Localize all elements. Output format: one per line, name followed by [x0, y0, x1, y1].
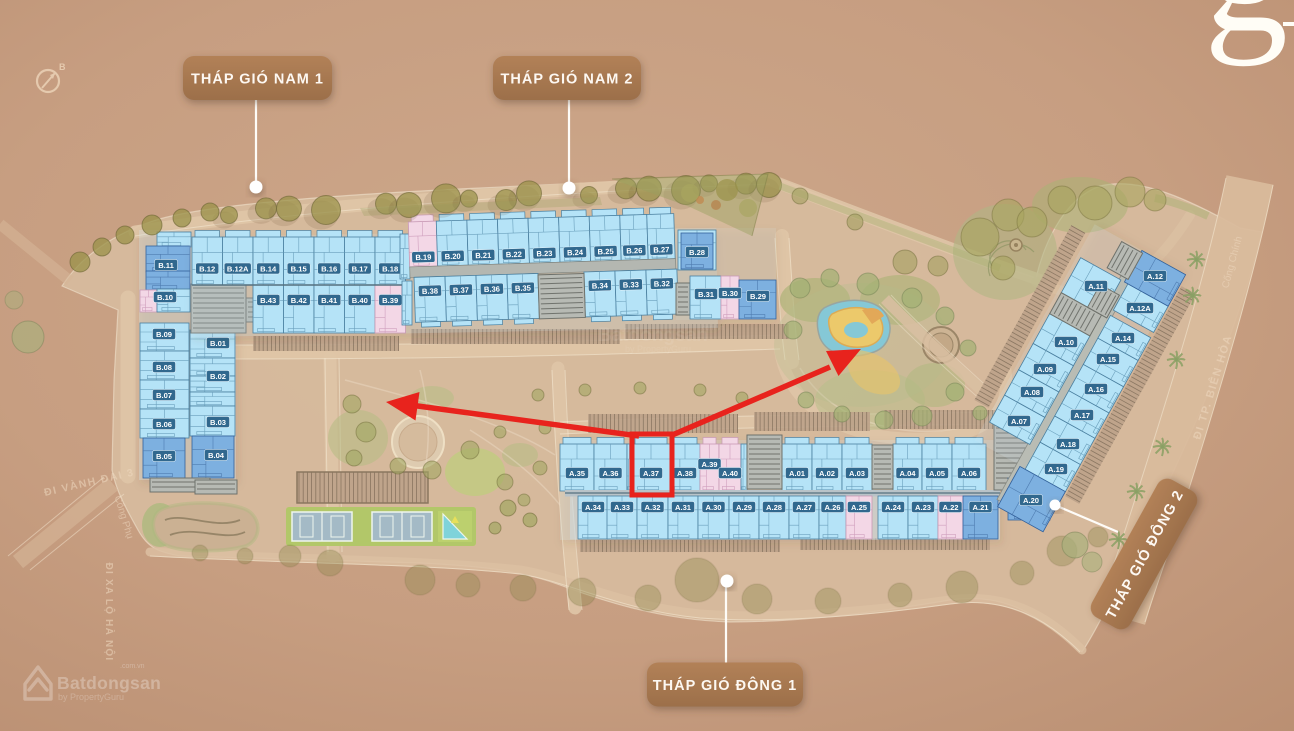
svg-text:A.27: A.27	[796, 503, 812, 512]
svg-text:A.37: A.37	[643, 469, 659, 478]
svg-text:B.23: B.23	[536, 249, 552, 258]
svg-text:B.15: B.15	[291, 264, 308, 273]
svg-text:A.06: A.06	[961, 469, 977, 478]
svg-text:B.33: B.33	[623, 280, 639, 289]
svg-text:B.35: B.35	[515, 284, 532, 294]
svg-text:A.35: A.35	[569, 469, 586, 478]
svg-text:A.24: A.24	[885, 503, 902, 512]
svg-text:A.31: A.31	[675, 503, 692, 512]
svg-text:B.28: B.28	[689, 248, 705, 257]
svg-text:A.05: A.05	[929, 469, 946, 478]
svg-text:B.21: B.21	[475, 251, 492, 261]
svg-text:B.08: B.08	[156, 363, 172, 372]
svg-text:A.28: A.28	[766, 503, 782, 512]
svg-text:A.11: A.11	[1088, 282, 1104, 291]
svg-text:B.31: B.31	[698, 290, 715, 299]
svg-text:B.41: B.41	[321, 296, 338, 305]
svg-text:B.20: B.20	[445, 252, 461, 261]
svg-text:B.01: B.01	[210, 339, 227, 348]
svg-text:A.29: A.29	[736, 503, 752, 512]
svg-text:B.22: B.22	[506, 250, 522, 259]
svg-text:B.36: B.36	[484, 285, 500, 294]
svg-text:Batdongsan: Batdongsan	[598, 325, 708, 346]
svg-text:B.02: B.02	[210, 372, 226, 381]
svg-text:B.04: B.04	[208, 451, 225, 460]
svg-text:by PropertyGuru: by PropertyGuru	[58, 692, 124, 702]
svg-text:A.30: A.30	[705, 503, 721, 512]
svg-text:B.05: B.05	[156, 452, 173, 461]
svg-text:ĐI XA LỘ HÀ NỘI: ĐI XA LỘ HÀ NỘI	[103, 563, 116, 662]
svg-text:A.02: A.02	[819, 469, 835, 478]
svg-text:B.43: B.43	[260, 296, 276, 305]
svg-text:B.39: B.39	[382, 296, 398, 305]
svg-text:B.25: B.25	[597, 247, 614, 257]
svg-text:A.20: A.20	[1023, 496, 1039, 505]
svg-text:B.32: B.32	[654, 279, 670, 288]
svg-text:A.10: A.10	[1058, 338, 1074, 347]
svg-text:A.26: A.26	[824, 503, 840, 512]
svg-text:A.15: A.15	[1100, 355, 1117, 364]
svg-text:A.07: A.07	[1011, 417, 1027, 426]
svg-text:A.18: A.18	[1060, 440, 1076, 449]
svg-text:A.38: A.38	[677, 469, 693, 478]
svg-text:THÁP GIÓ NAM 2: THÁP GIÓ NAM 2	[501, 70, 634, 88]
svg-text:B.10: B.10	[157, 293, 173, 302]
svg-text:A.12A: A.12A	[1129, 304, 1151, 313]
svg-text:B.14: B.14	[260, 264, 277, 273]
svg-text:.com.vn: .com.vn	[120, 663, 145, 670]
svg-text:A.09: A.09	[1037, 365, 1053, 374]
svg-text:B.29: B.29	[750, 292, 766, 301]
svg-text:B.06: B.06	[156, 420, 172, 429]
svg-text:B.42: B.42	[291, 296, 307, 305]
svg-text:A.19: A.19	[1048, 465, 1064, 474]
svg-text:B.19: B.19	[415, 253, 431, 262]
svg-text:B.12A: B.12A	[227, 264, 249, 273]
svg-text:A.23: A.23	[915, 503, 931, 512]
svg-text:A.32: A.32	[644, 503, 660, 512]
svg-text:B.07: B.07	[156, 391, 172, 400]
svg-text:THÁP GIÓ NAM 1: THÁP GIÓ NAM 1	[191, 70, 324, 88]
svg-text:B.34: B.34	[592, 281, 609, 291]
svg-text:B.09: B.09	[156, 330, 172, 339]
svg-text:B.03: B.03	[210, 418, 226, 427]
svg-text:B.38: B.38	[422, 286, 438, 295]
svg-text:B.17: B.17	[352, 264, 368, 273]
svg-text:A.40: A.40	[722, 469, 738, 478]
svg-text:A.34: A.34	[585, 503, 602, 512]
svg-text:B.27: B.27	[653, 245, 669, 254]
svg-text:Batdongsan: Batdongsan	[57, 673, 161, 693]
svg-text:B.30: B.30	[722, 289, 738, 298]
svg-text:A.22: A.22	[942, 503, 958, 512]
svg-text:B: B	[59, 62, 66, 72]
svg-text:A.03: A.03	[849, 469, 865, 478]
svg-text:B.16: B.16	[321, 264, 337, 273]
svg-text:A.01: A.01	[789, 469, 806, 478]
svg-text:A.08: A.08	[1024, 388, 1040, 397]
svg-text:g: g	[1204, 0, 1288, 67]
svg-text:B.37: B.37	[453, 285, 469, 294]
svg-text:A.33: A.33	[614, 503, 630, 512]
svg-text:A.36: A.36	[602, 469, 618, 478]
svg-text:A.04: A.04	[899, 469, 916, 478]
svg-text:B.24: B.24	[567, 248, 584, 258]
svg-text:A.16: A.16	[1088, 385, 1104, 394]
svg-text:B.11: B.11	[158, 261, 174, 270]
svg-text:A.12: A.12	[1147, 272, 1163, 281]
svg-text:A.17: A.17	[1074, 411, 1090, 420]
svg-text:B.12: B.12	[199, 264, 215, 273]
svg-text:by PropertyGuru: by PropertyGuru	[625, 344, 691, 354]
svg-text:A.21: A.21	[972, 503, 989, 512]
svg-text:B.18: B.18	[382, 264, 398, 273]
svg-text:A.39: A.39	[701, 460, 717, 469]
svg-text:A.25: A.25	[851, 503, 868, 512]
svg-text:A.14: A.14	[1115, 334, 1132, 343]
svg-text:THÁP GIÓ ĐÔNG 1: THÁP GIÓ ĐÔNG 1	[653, 676, 797, 694]
svg-text:B.40: B.40	[352, 296, 368, 305]
svg-text:.com.vn: .com.vn	[700, 325, 725, 332]
svg-text:B.26: B.26	[626, 246, 642, 255]
